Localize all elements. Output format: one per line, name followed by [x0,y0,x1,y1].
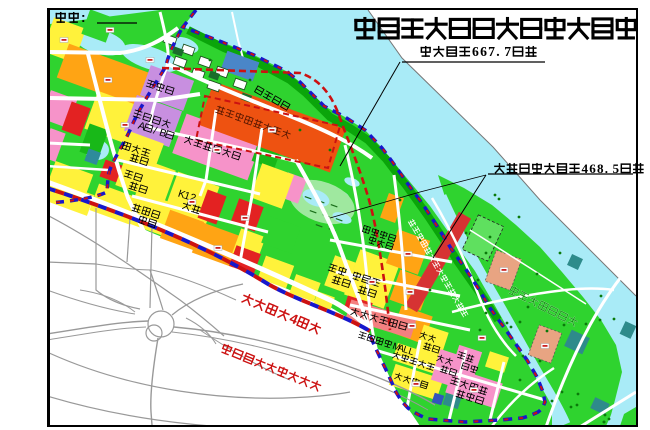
svg-text:7: 7 [504,44,511,59]
svg-text::: : [81,10,86,25]
svg-text:6: 6 [472,44,479,59]
svg-text:7: 7 [488,44,495,59]
svg-text:.: . [496,44,499,59]
svg-text:6: 6 [480,44,487,59]
